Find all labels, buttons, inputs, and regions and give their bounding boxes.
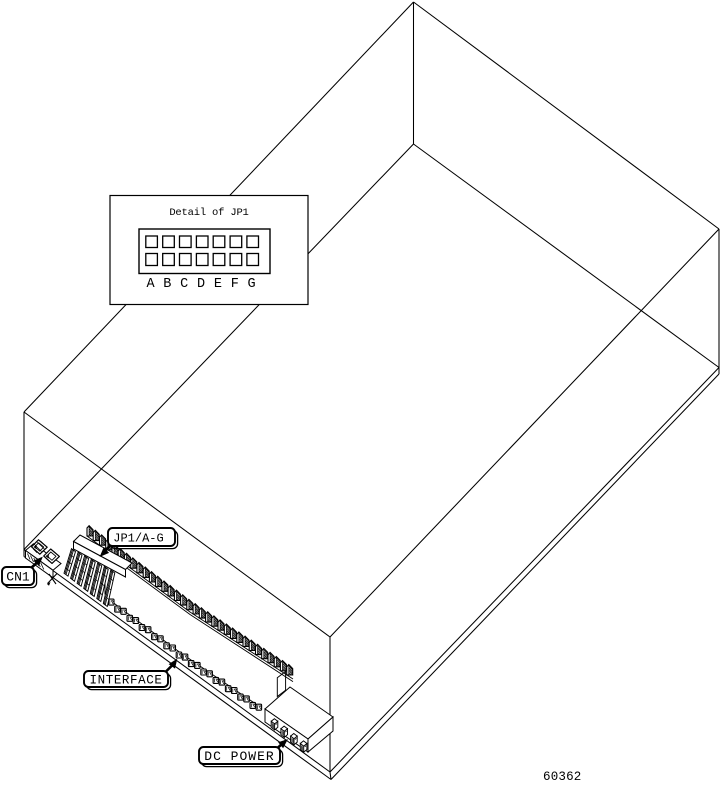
svg-text:E: E <box>214 277 222 292</box>
svg-text:A: A <box>146 277 155 292</box>
svg-text:JP1/A-G: JP1/A-G <box>113 531 163 545</box>
svg-text:C: C <box>180 277 188 292</box>
svg-text:B: B <box>163 277 171 292</box>
svg-text:INTERFACE: INTERFACE <box>90 673 163 687</box>
svg-text:Detail of JP1: Detail of JP1 <box>169 207 248 219</box>
svg-text:DC POWER: DC POWER <box>204 749 274 764</box>
svg-text:60362: 60362 <box>543 770 582 784</box>
svg-text:CN1: CN1 <box>6 569 30 584</box>
svg-text:F: F <box>231 277 239 292</box>
svg-text:G: G <box>248 277 256 292</box>
svg-text:D: D <box>197 277 205 292</box>
